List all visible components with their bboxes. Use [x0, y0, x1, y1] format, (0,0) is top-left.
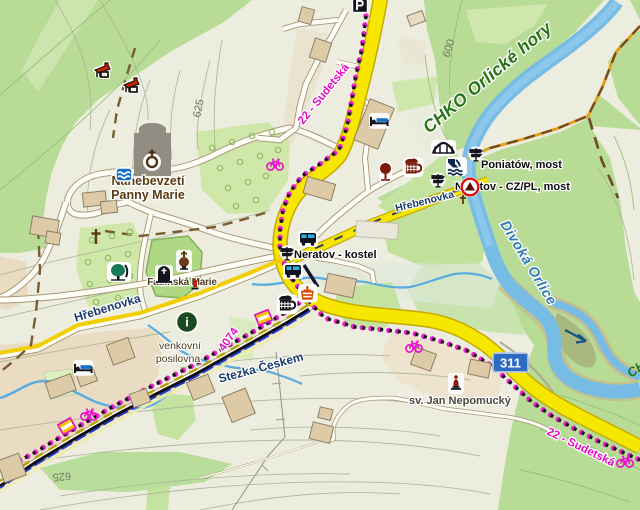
- svg-text:posilovna: posilovna: [156, 353, 201, 365]
- svg-text:venkovní: venkovní: [159, 340, 201, 352]
- svg-text:311: 311: [500, 356, 521, 371]
- svg-text:sv. Jan Nepomucký: sv. Jan Nepomucký: [409, 395, 512, 407]
- svg-text:i: i: [185, 315, 189, 330]
- svg-text:Poniatów, most: Poniatów, most: [481, 159, 562, 171]
- svg-text:Panny Marie: Panny Marie: [111, 188, 185, 202]
- svg-text:625: 625: [52, 469, 72, 483]
- svg-text:Neratov - kostel: Neratov - kostel: [294, 249, 377, 261]
